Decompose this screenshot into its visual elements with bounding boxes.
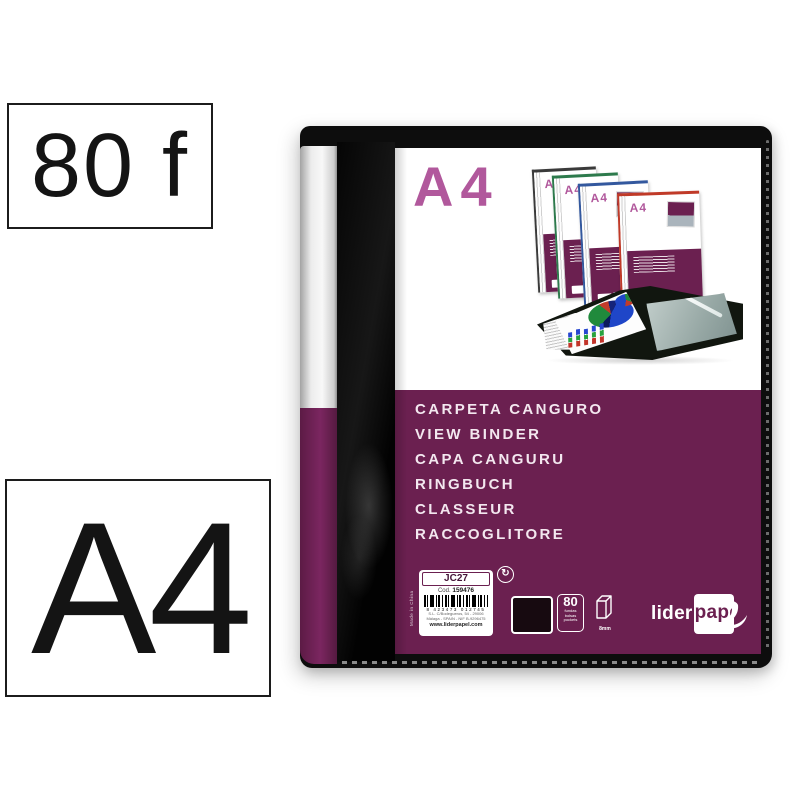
spine-size-label: 8mm <box>591 626 619 632</box>
bottom-edge-stitching <box>342 661 758 664</box>
logo-box: pape <box>694 594 734 634</box>
recycle-icon <box>497 566 514 583</box>
pocket-count-badge: 80 fundas bolsas pockets <box>557 594 584 632</box>
binder-spine-icon: 8mm <box>591 594 619 632</box>
right-edge-stitching <box>766 140 769 652</box>
label-website: www.liderpapel.com <box>422 622 490 628</box>
product-name: RACCOGLITORE <box>415 522 604 547</box>
color-swatch-black <box>511 596 553 634</box>
mini-format-label: A4 <box>629 200 647 215</box>
binder-cover-insert: A4 A4 A4 <box>395 148 761 654</box>
binder-spine <box>337 142 395 662</box>
product-label: JC27 Cod. 159476 8 423473 012745 S.L. C/… <box>419 570 493 636</box>
book-spine-icon <box>593 594 617 620</box>
made-in-label: Made in China <box>409 590 414 626</box>
mini-cover-art <box>667 201 695 227</box>
product-name: CARPETA CANGURO <box>415 397 604 422</box>
pocket-count: 80 <box>558 595 583 609</box>
product-name: CAPA CANGURU <box>415 447 604 472</box>
format-badge-label: A4 <box>31 494 245 682</box>
mini-text-lines <box>633 256 674 273</box>
logo-text-lider: lider <box>651 603 693 625</box>
leaf-icon <box>721 599 749 636</box>
product-name: VIEW BINDER <box>415 422 604 447</box>
product-names-list: CARPETA CANGURO VIEW BINDER CAPA CANGURU… <box>415 397 604 547</box>
format-badge: A4 <box>5 479 271 697</box>
sheets-badge-label: 80 f <box>31 115 189 218</box>
label-code-prefix: Cod. <box>438 588 451 594</box>
sheets-badge: 80 f <box>7 103 213 229</box>
label-address-line: Málaga - SPAIN - NIF B-9296475 <box>422 617 490 622</box>
cover-format-label: A4 <box>413 154 499 219</box>
binder-photo: A4 A4 A4 <box>300 126 772 668</box>
product-name: RINGBUCH <box>415 472 604 497</box>
mini-format-label: A4 <box>590 190 608 205</box>
product-name: CLASSEUR <box>415 497 604 522</box>
label-model: JC27 <box>422 572 490 586</box>
liderpapel-logo: lider pape <box>651 590 734 638</box>
label-code-value: 159476 <box>452 587 474 594</box>
binder-clear-spine-strip <box>300 146 337 408</box>
open-binder-photo <box>537 286 743 360</box>
bar-chart-graphic <box>568 323 604 348</box>
barcode <box>424 595 488 607</box>
pocket-word: pockets <box>558 618 583 623</box>
binder-clear-spine-strip-lower <box>300 408 337 664</box>
cover-product-montage: A4 A4 <box>531 162 759 390</box>
